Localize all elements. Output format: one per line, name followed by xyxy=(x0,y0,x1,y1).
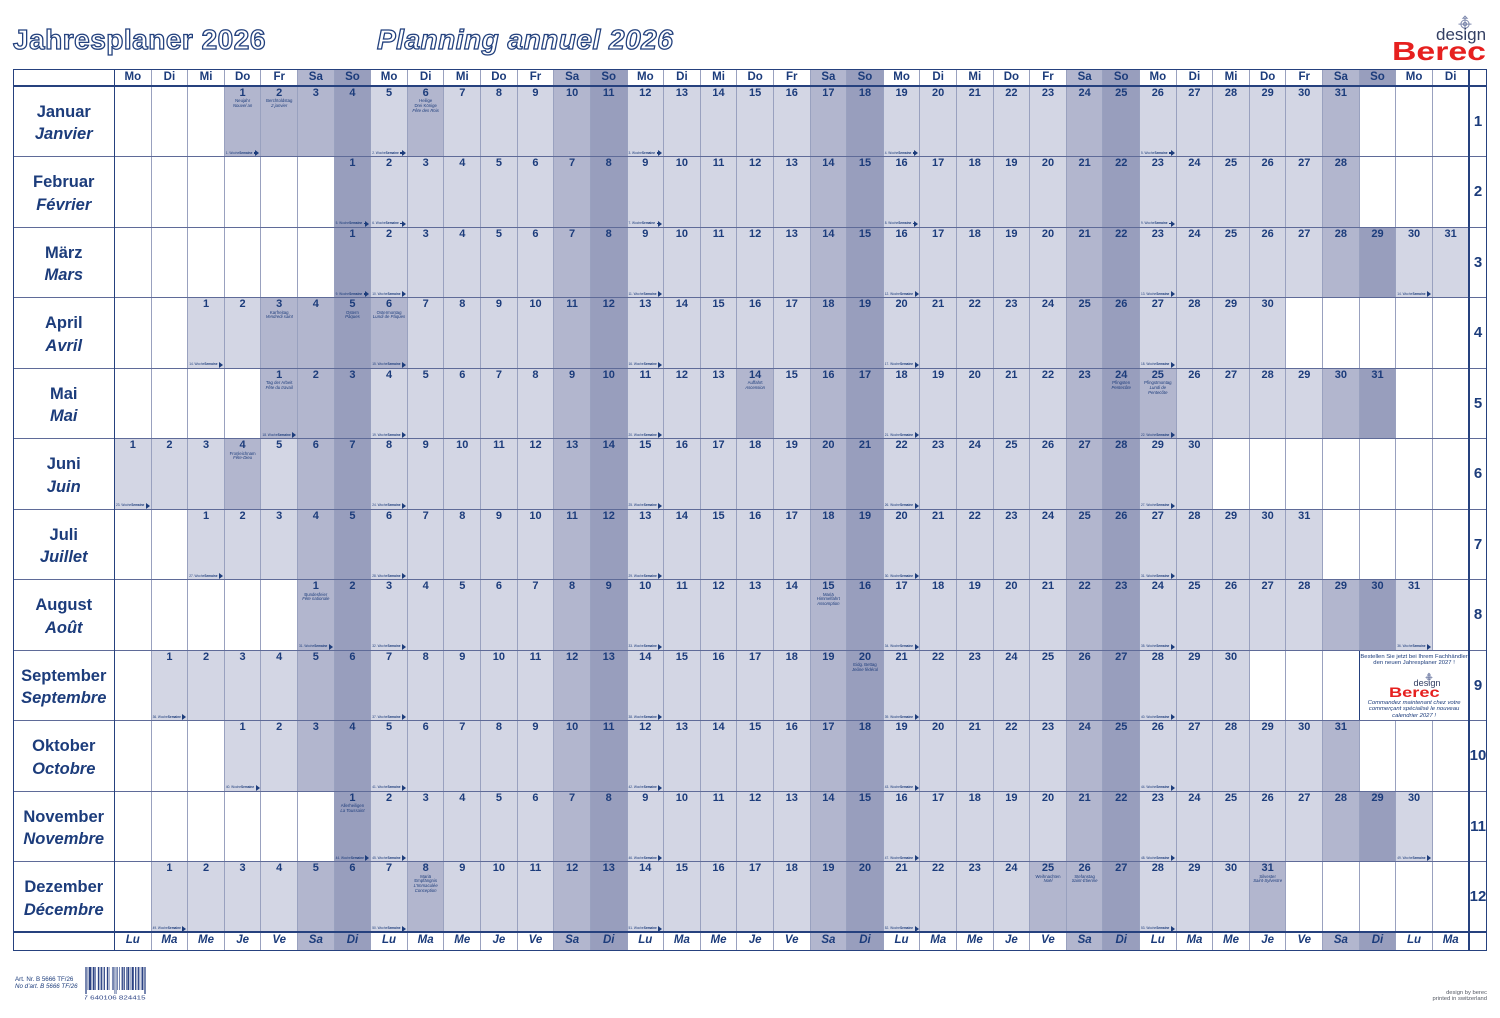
svg-text:7 640106 824415: 7 640106 824415 xyxy=(85,996,146,1001)
